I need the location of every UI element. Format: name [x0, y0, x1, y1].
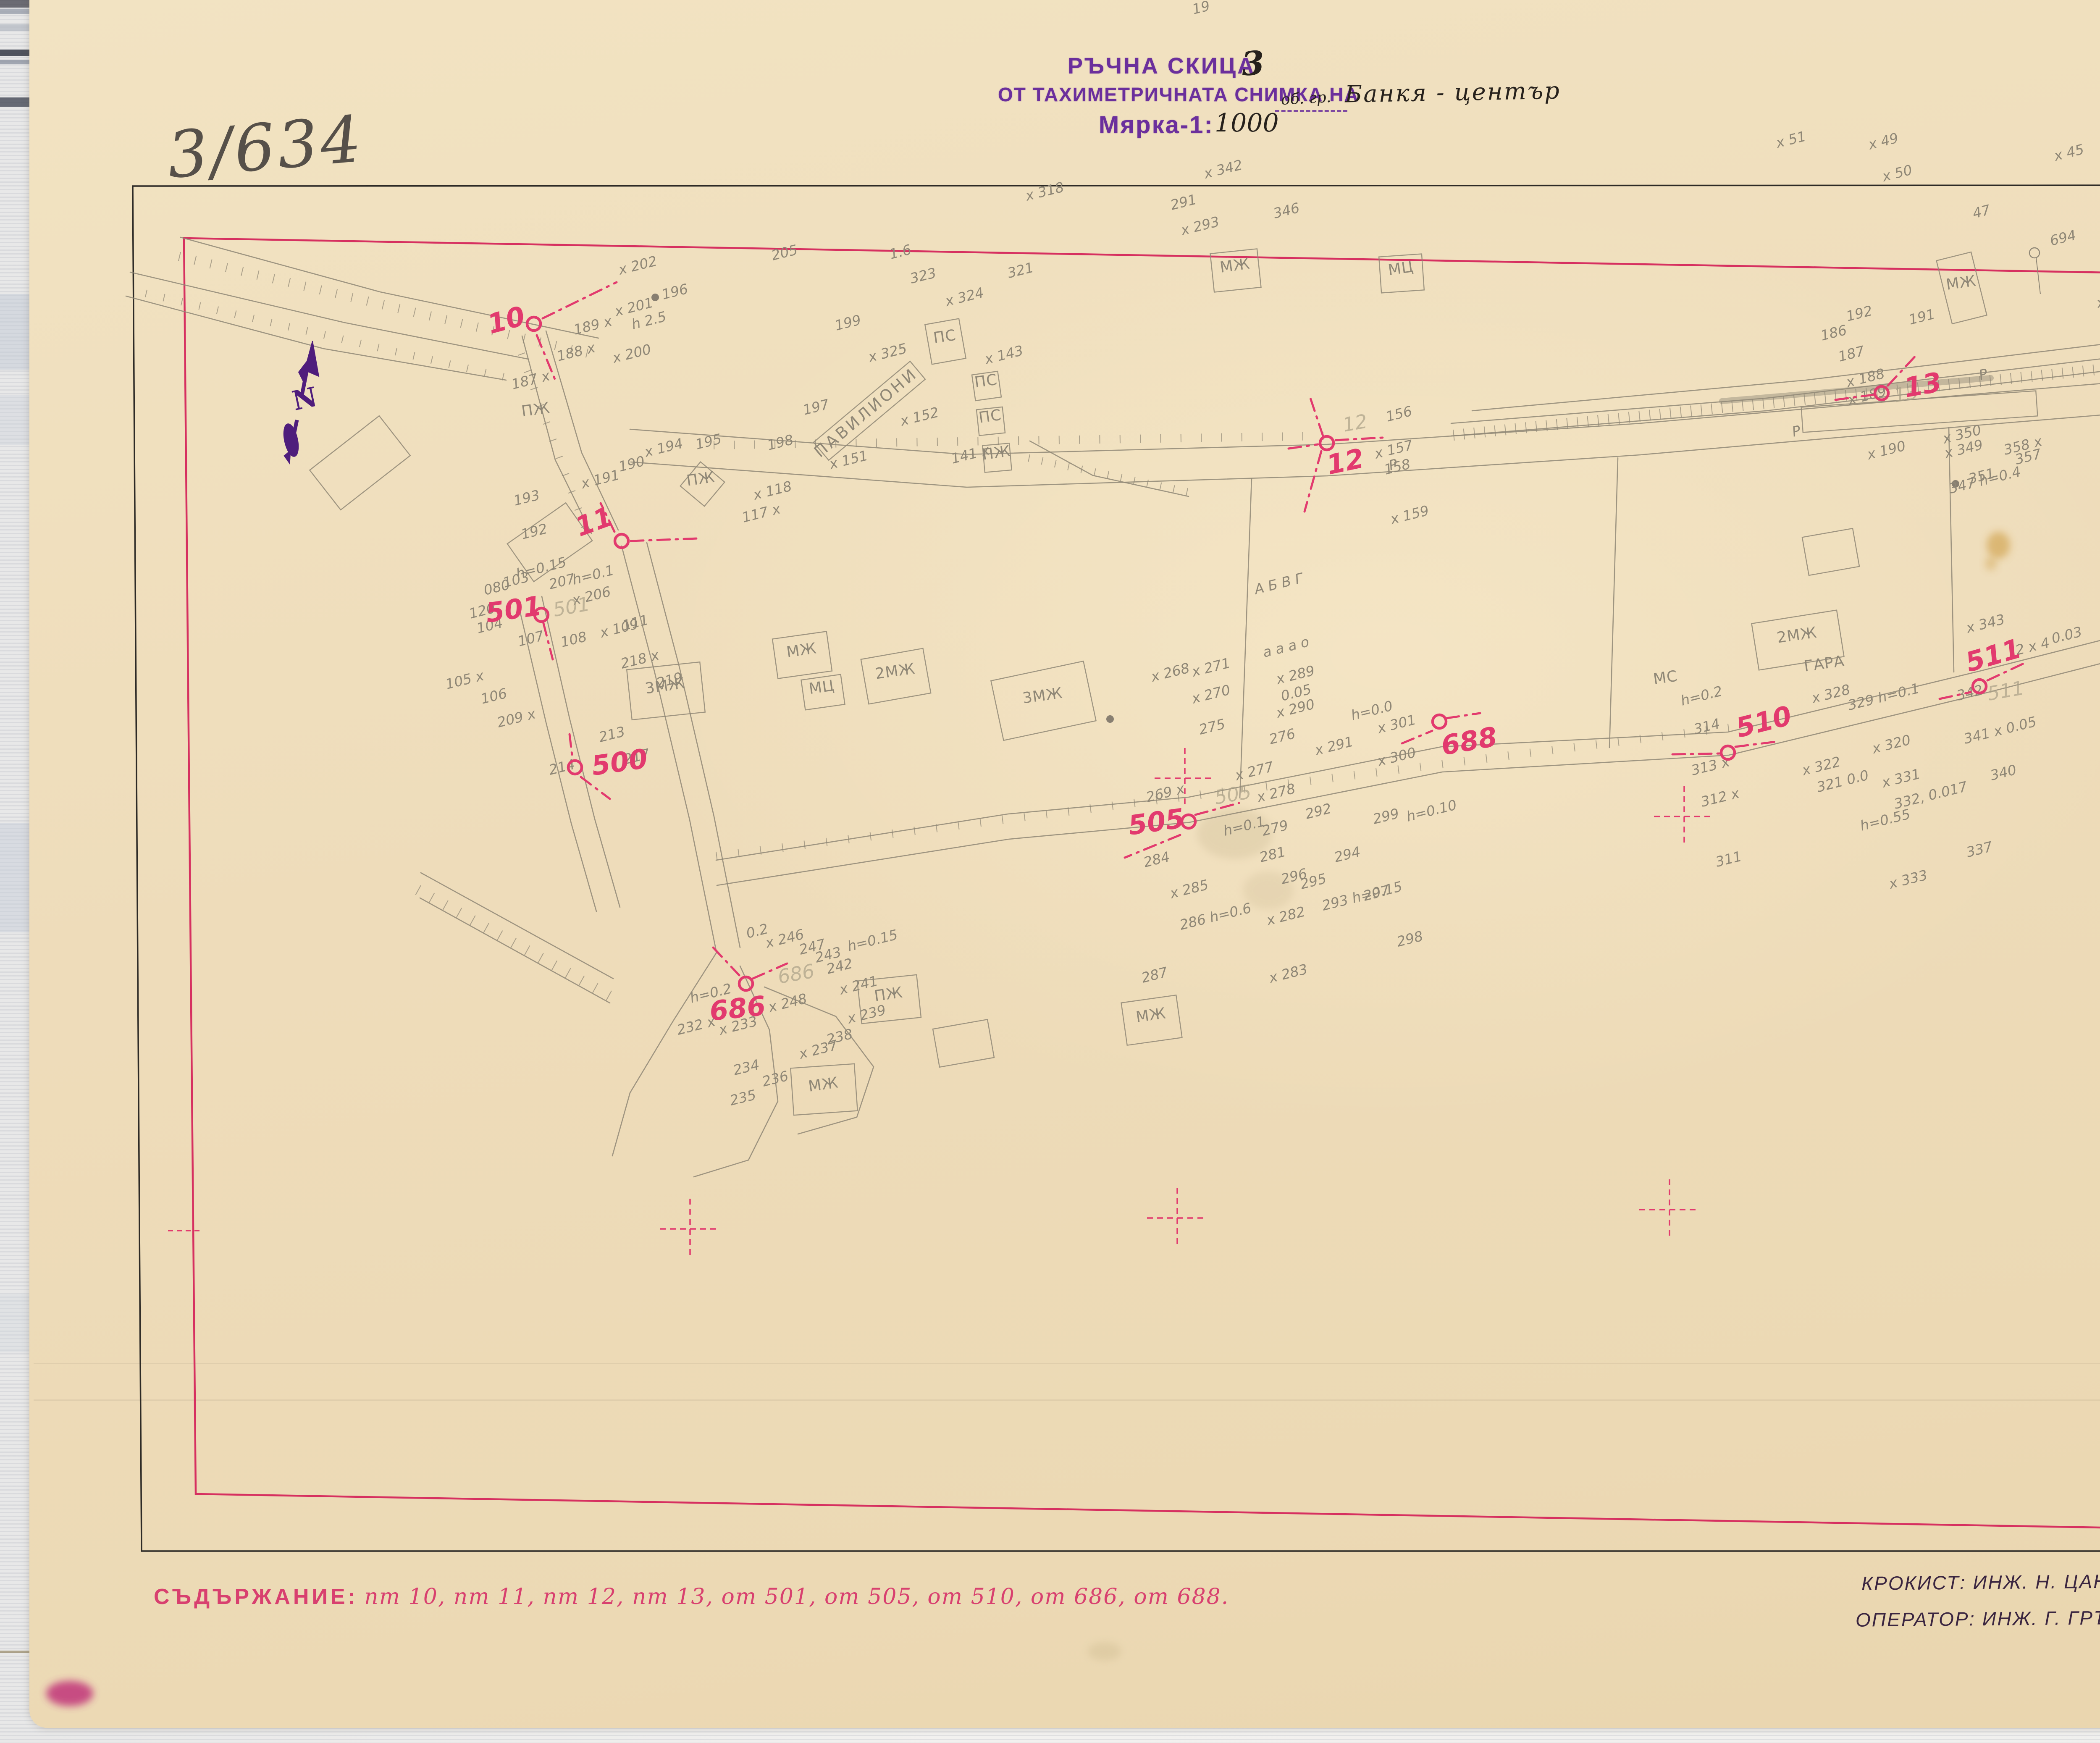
survey-point-number: x 271	[1190, 654, 1232, 680]
survey-point-number: 694	[2048, 227, 2078, 249]
hatch-tick	[288, 278, 290, 287]
hatch-tick	[1629, 412, 1630, 423]
building-outline	[310, 416, 410, 510]
survey-point-number: 106	[479, 685, 509, 707]
road-line	[647, 543, 740, 948]
hatch-tick	[1442, 760, 1443, 768]
survey-point-number: x 285	[1168, 876, 1210, 902]
survey-point-number: 117 x	[740, 500, 782, 525]
leader-line	[2036, 258, 2040, 294]
hatch-tick	[870, 832, 871, 841]
survey-point-number: 297	[1362, 882, 1391, 904]
hatch-tick	[1090, 804, 1091, 813]
control-point-label: 511	[1962, 633, 2025, 678]
control-point-label: 500	[590, 743, 650, 782]
hatch-tick	[1147, 480, 1148, 487]
hatch-tick	[324, 331, 325, 339]
hatch-tick	[335, 289, 337, 298]
hatch-tick	[1649, 410, 1651, 421]
hatch-tick	[1639, 411, 1640, 422]
hatch-tick	[1042, 457, 1043, 465]
road-line	[130, 272, 528, 359]
tree-symbol	[651, 294, 659, 301]
survey-point-number: А Б В Г	[1252, 570, 1306, 598]
survey-point-number: 105 x	[444, 667, 486, 692]
hatch-tick	[1200, 790, 1201, 799]
hatch-tick	[1494, 425, 1496, 436]
building-label: ПС	[932, 327, 957, 347]
survey-point-number: 323	[908, 265, 938, 287]
survey-point-number: x 248	[766, 990, 809, 1016]
north-arrow-feather	[281, 423, 301, 458]
survey-point-number: 108	[559, 628, 589, 651]
krokist-line: КРОКИСТ: ИНЖ. Н. ЦАНЕВ	[1861, 1570, 2100, 1595]
hatch-tick	[1134, 477, 1135, 484]
survey-point-number: x 143	[983, 342, 1025, 367]
hatch-tick	[367, 297, 369, 305]
survey-point-number: x 194	[643, 435, 685, 460]
survey-point-number: x 202	[617, 252, 659, 278]
hatch-tick	[523, 334, 525, 343]
road-line	[1609, 458, 1618, 748]
control-point-circle	[1433, 715, 1446, 728]
building-label: ГАРА	[1803, 653, 1846, 675]
hatch-tick	[593, 983, 598, 993]
survey-point-number: 312 x	[1699, 785, 1741, 810]
survey-point-number: h=0.15	[846, 926, 900, 954]
hatch-tick	[306, 327, 307, 335]
hatch-tick	[484, 369, 486, 376]
hatch-tick	[2062, 368, 2063, 379]
survey-point-number: 311	[1714, 848, 1744, 870]
survey-point-number: h=0.55	[1858, 806, 1912, 834]
survey-point-number: 205	[770, 241, 800, 264]
hatch-tick	[738, 849, 739, 857]
survey-point-number: x 270	[1190, 681, 1232, 707]
survey-point-number: 192	[1845, 302, 1874, 325]
control-point-pencil-ghost: 501	[551, 592, 592, 621]
hatch-tick	[1160, 483, 1162, 490]
hatch-tick	[2042, 370, 2043, 381]
scale-value-handwritten: 1000	[1215, 108, 1279, 138]
north-arrow-feather	[284, 450, 291, 464]
survey-point-number: 189 x	[572, 312, 614, 338]
survey-point-number: 213	[597, 723, 627, 745]
survey-point-number: x 289	[1274, 662, 1317, 688]
hatch-tick	[1055, 460, 1056, 467]
building-label: 3МЖ	[1021, 685, 1064, 707]
hatch-tick	[341, 336, 343, 343]
pencil-labels-layer: x 202196x 201h 2.5189 x188 xx 200187 x19…	[444, 0, 2100, 1109]
hatch-tick	[145, 290, 147, 297]
hatch-tick	[1574, 743, 1575, 751]
survey-point-number: x 49	[1866, 129, 1900, 153]
hatch-tick	[199, 302, 200, 310]
survey-point-number: а а а о	[1261, 633, 1311, 661]
building-label: МЖ	[1945, 272, 1977, 294]
survey-point-number: 298	[1395, 928, 1425, 950]
survey-point-number: x 291	[1313, 733, 1355, 759]
paper-stain	[1088, 1642, 1121, 1661]
building-label: ПС	[974, 371, 998, 391]
hatch-tick	[2083, 366, 2084, 377]
hatch-tick	[2093, 365, 2094, 375]
operator-line: ОПЕРАТОР: ИНЖ. Г. ГРЪНЧОВСКИ	[1856, 1605, 2100, 1631]
hatch-tick	[320, 286, 322, 294]
hatch-tick	[1567, 418, 1568, 429]
survey-point-number: 190	[617, 453, 647, 475]
hatch-tick	[413, 352, 415, 360]
survey-point-number: 314	[1692, 715, 1722, 738]
survey-point-number: x 324	[943, 284, 986, 310]
survey-point-number: x 159	[1389, 502, 1431, 528]
survey-point-number: 299	[1371, 805, 1401, 827]
hatch-tick	[414, 308, 416, 317]
survey-point-number: x 343	[1964, 611, 2007, 636]
survey-point-number: x 152	[898, 404, 941, 429]
hatch-tick	[1112, 802, 1113, 810]
hatch-tick	[1701, 404, 1702, 415]
control-point-label: 10	[484, 301, 528, 341]
survey-point-number: 321	[1006, 259, 1036, 281]
survey-point-number: 329 h=0.1	[1846, 680, 1921, 714]
subtitle-place-name: Банкя - център	[1344, 77, 1561, 108]
hatch-tick	[1508, 751, 1509, 760]
frame-layer	[133, 185, 2100, 1551]
paper-stain	[1987, 532, 2010, 559]
hatch-tick	[804, 840, 805, 849]
survey-point-number: 187 x	[510, 367, 552, 392]
hatch-tick	[1618, 738, 1619, 746]
building-label: ПЖ	[520, 399, 551, 420]
hatch-tick	[525, 945, 530, 955]
control-point-label: 688	[1439, 722, 1499, 762]
hatch-tick	[457, 908, 462, 918]
survey-point-number: 198	[766, 431, 795, 454]
hatch-tick	[1332, 774, 1333, 782]
control-point-ray	[1305, 451, 1321, 512]
building-label: МЖ	[807, 1074, 840, 1095]
building-label: ПС	[978, 407, 1003, 427]
hatch-tick	[252, 315, 254, 322]
hatch-tick	[257, 270, 259, 279]
survey-point-number: x 191	[579, 466, 622, 492]
survey-point-number: x 318	[1024, 178, 1066, 204]
hatch-tick	[163, 294, 165, 302]
hatch-tick	[1046, 810, 1047, 819]
hatch-tick	[1354, 771, 1355, 780]
hatch-tick	[958, 821, 959, 829]
hatch-tick	[1684, 729, 1685, 738]
survey-point-number: x 277	[1233, 758, 1276, 784]
survey-point-number: 276	[1268, 725, 1297, 748]
control-point-ray	[713, 948, 739, 975]
survey-point-number: 47	[1971, 202, 1992, 222]
hatch-tick	[826, 838, 827, 846]
hatch-tick	[1464, 429, 1465, 440]
paper-stain	[46, 1681, 93, 1706]
hatch-tick	[484, 923, 489, 933]
survey-point-number: x 283	[1267, 961, 1310, 986]
hatch-tick	[1659, 409, 1661, 420]
hatch-tick	[1134, 799, 1135, 807]
survey-point-number: 192	[520, 520, 549, 543]
survey-point-number: 236	[761, 1068, 790, 1090]
hatch-tick	[1186, 488, 1188, 496]
north-letter: N	[289, 381, 320, 417]
hatch-tick	[543, 422, 550, 424]
survey-point-number: 0.03	[2050, 623, 2084, 647]
hatch-tick	[449, 360, 450, 368]
survey-point-number: x 190	[1865, 437, 1908, 463]
hatch-tick	[1680, 407, 1682, 417]
survey-point-number: x 293	[1179, 213, 1221, 239]
control-point-pencil-ghost: 511	[1986, 676, 2026, 705]
road-line	[1451, 350, 2100, 423]
hatch-tick	[1670, 408, 1671, 419]
hatch-tick	[415, 885, 421, 895]
hatch-tick	[470, 916, 475, 925]
control-point-ray	[1672, 753, 1719, 754]
sketch-number-handwritten: 3	[1240, 44, 1265, 84]
hatch-tick	[1486, 754, 1487, 763]
road-line	[421, 873, 613, 979]
survey-point-number: 341 x 0.05	[1962, 713, 2038, 747]
contents-line: СЪДЪРЖАНИЕ: пт 10, пт 11, пт 12, пт 13, …	[154, 1584, 1229, 1609]
survey-point-number: x 45	[2052, 141, 2086, 164]
survey-point-number: 284	[1142, 848, 1172, 871]
road-line	[717, 644, 2100, 885]
tree-symbol	[1106, 715, 1114, 723]
scanned-sheet: x 202196x 201h 2.5189 x188 xx 200187 x19…	[0, 0, 2100, 1743]
building-label: 2МЖ	[1776, 624, 1818, 647]
road-line	[1240, 479, 1252, 798]
control-point-ray	[1402, 731, 1432, 743]
control-point-circle	[1320, 436, 1333, 450]
hatch-tick	[556, 456, 563, 459]
hatch-tick	[476, 323, 478, 331]
road-line	[612, 953, 717, 1156]
building-label: МЦ	[808, 677, 835, 698]
hatch-tick	[579, 976, 585, 985]
building-outline	[933, 1019, 994, 1067]
hatch-tick	[518, 353, 525, 355]
survey-point-number: 197	[801, 396, 831, 418]
control-point-label: 13	[1902, 367, 1944, 404]
survey-point-number: x 118	[751, 478, 794, 503]
survey-point-number: 191	[1907, 306, 1937, 328]
hatch-tick	[1728, 724, 1729, 732]
survey-point-number: 193	[512, 487, 542, 509]
hatch-tick	[1028, 454, 1030, 462]
survey-point-number: 187	[1837, 343, 1866, 365]
hatch-tick	[511, 938, 516, 948]
hatch-tick	[304, 282, 306, 291]
hatch-tick	[1094, 468, 1096, 476]
hatch-tick	[782, 843, 783, 852]
survey-point-number: x 328	[1810, 681, 1852, 706]
hatch-tick	[226, 263, 228, 272]
hatch-tick	[1107, 471, 1109, 479]
hatch-tick	[980, 818, 981, 827]
hatch-tick	[1711, 404, 1712, 415]
survey-point-number: x 300	[1375, 744, 1418, 769]
hatch-tick	[241, 267, 243, 276]
hatch-tick	[2052, 369, 2053, 380]
control-point-label: 686	[708, 990, 767, 1027]
survey-point-number: 186	[1819, 322, 1849, 344]
building-label: МЖ	[1135, 1005, 1167, 1026]
hatch-tick	[288, 323, 290, 331]
survey-point-number: 275	[1197, 716, 1227, 738]
hatch-tick	[1552, 746, 1553, 754]
survey-point-number: 196	[660, 281, 690, 303]
survey-point-number: x 268	[1149, 659, 1192, 685]
hatch-tick	[382, 300, 384, 309]
hatch-tick	[429, 893, 435, 903]
hatch-tick	[1376, 768, 1377, 777]
hatch-tick	[429, 312, 431, 320]
hatch-tick	[716, 852, 717, 860]
hatch-tick	[234, 311, 236, 318]
survey-point-number: 269 x	[1144, 780, 1186, 805]
hatch-tick	[914, 827, 915, 835]
survey-point-number: 346	[1272, 199, 1302, 222]
hatch-tick	[848, 835, 849, 843]
building-outline	[1802, 528, 1859, 575]
hatch-tick	[538, 953, 543, 963]
survey-point-circle-pencil	[2029, 248, 2040, 258]
control-point-ray	[543, 282, 617, 318]
survey-point-number: 156	[1384, 403, 1414, 425]
road-line	[546, 331, 618, 530]
control-point-label: 510	[1733, 700, 1795, 744]
survey-point-number: h=0.2	[1679, 682, 1724, 709]
hatch-tick	[377, 344, 379, 352]
building-label: 3МЖ	[644, 675, 686, 698]
hatch-tick	[360, 340, 361, 347]
hatch-tick	[445, 315, 447, 324]
map-canvas: x 202196x 201h 2.5189 x188 xx 200187 x19…	[0, 0, 2100, 1743]
hatch-tick	[351, 293, 353, 302]
survey-point-number: 111	[621, 612, 651, 634]
survey-point-number: 19	[1191, 0, 1212, 18]
hatch-tick	[194, 256, 196, 265]
hatch-tick	[460, 319, 462, 328]
survey-point-number: x 342	[1202, 156, 1244, 182]
survey-point-number: 1.6	[888, 241, 913, 262]
hatch-tick	[497, 931, 503, 940]
hatch-tick	[178, 252, 181, 261]
contents-items: пт 10, пт 11, пт 12, пт 13, от 501, от 5…	[364, 1584, 1229, 1609]
hatch-tick	[565, 968, 571, 978]
survey-point-number: x 333	[1887, 866, 1929, 892]
hatch-tick	[1474, 428, 1475, 438]
survey-point-number: h=0.1	[571, 562, 616, 588]
hatch-tick	[1530, 749, 1531, 757]
control-point-pencil-ghost: 686	[776, 959, 816, 988]
outer-frame	[133, 185, 2100, 1551]
building-label: МЖ	[785, 640, 818, 661]
road-line	[181, 237, 598, 338]
survey-point-number: h=0.10	[1405, 796, 1459, 824]
hatch-tick	[1398, 765, 1399, 774]
survey-point-number: x 51	[1774, 128, 1808, 151]
road-line	[420, 898, 610, 1003]
contents-label: СЪДЪРЖАНИЕ:	[154, 1585, 358, 1609]
survey-point-number: Р	[1790, 422, 1803, 440]
survey-point-number: 337	[1965, 838, 1995, 861]
survey-point-number: 293 h=0.15	[1320, 878, 1404, 914]
hatch-tick	[1068, 463, 1069, 470]
hatch-tick	[1484, 427, 1486, 438]
stamp-blank-underline	[1275, 110, 1347, 112]
hatch-tick	[443, 900, 448, 910]
survey-point-number: 292	[1304, 800, 1333, 822]
hatch-tick	[273, 274, 275, 283]
paper-stain	[1985, 557, 1997, 570]
survey-point-number: 294	[1333, 843, 1362, 866]
control-point-ray	[631, 538, 698, 541]
hatch-tick	[2072, 367, 2074, 378]
control-point-pencil-ghost: 12	[1341, 409, 1369, 436]
survey-point-number: 235	[728, 1087, 758, 1109]
survey-point-number: 209 x	[496, 705, 538, 730]
hatch-tick	[892, 829, 893, 838]
survey-point-number: 234	[732, 1056, 761, 1079]
subtitle-municipality: об. гр.	[1281, 89, 1331, 108]
road-line	[1949, 428, 1954, 672]
survey-point-number: x 325	[866, 340, 909, 365]
hatch-tick	[1596, 740, 1597, 749]
hatch-tick	[270, 319, 272, 326]
survey-point-number: 199	[833, 312, 863, 334]
hatch-tick	[575, 508, 582, 510]
hatch-tick	[398, 304, 400, 313]
survey-point-number: 195	[694, 430, 724, 453]
hatch-tick	[395, 348, 397, 356]
hatch-tick	[181, 298, 183, 306]
stains-layer	[46, 532, 2010, 1706]
control-point-ray	[570, 734, 572, 759]
hatch-tick	[1173, 485, 1175, 493]
hatch-tick	[431, 356, 433, 364]
hatch-tick	[467, 365, 468, 372]
building-label: 2МЖ	[874, 660, 916, 683]
survey-point-number: 107	[516, 627, 546, 650]
hatch-tick	[1024, 813, 1025, 821]
hatch-tick	[1557, 419, 1558, 430]
north-arrow: N	[281, 341, 320, 464]
building-label: МЖ	[1219, 255, 1251, 276]
hatch-tick	[1121, 474, 1122, 482]
hatch-tick	[606, 991, 612, 1000]
survey-point-number: 291	[1169, 191, 1199, 213]
survey-point-number: x 200	[611, 341, 653, 366]
building-label: МЦ	[1387, 258, 1415, 279]
building-label: ПЖ	[873, 984, 904, 1005]
hatch-tick	[1310, 777, 1311, 785]
building-label: ПЖ	[981, 443, 1012, 464]
building-label: ПЖ	[685, 469, 716, 490]
page-title-stamp: РЪЧНА СКИЦА	[1068, 53, 1255, 79]
road-line	[1472, 335, 2100, 411]
survey-point-number: 287	[1140, 964, 1170, 986]
pencil-linework-layer	[126, 237, 2100, 1177]
control-point-ray	[1310, 398, 1323, 436]
survey-point-number: 286 h=0.6	[1178, 900, 1253, 933]
hatch-tick	[1464, 757, 1465, 766]
